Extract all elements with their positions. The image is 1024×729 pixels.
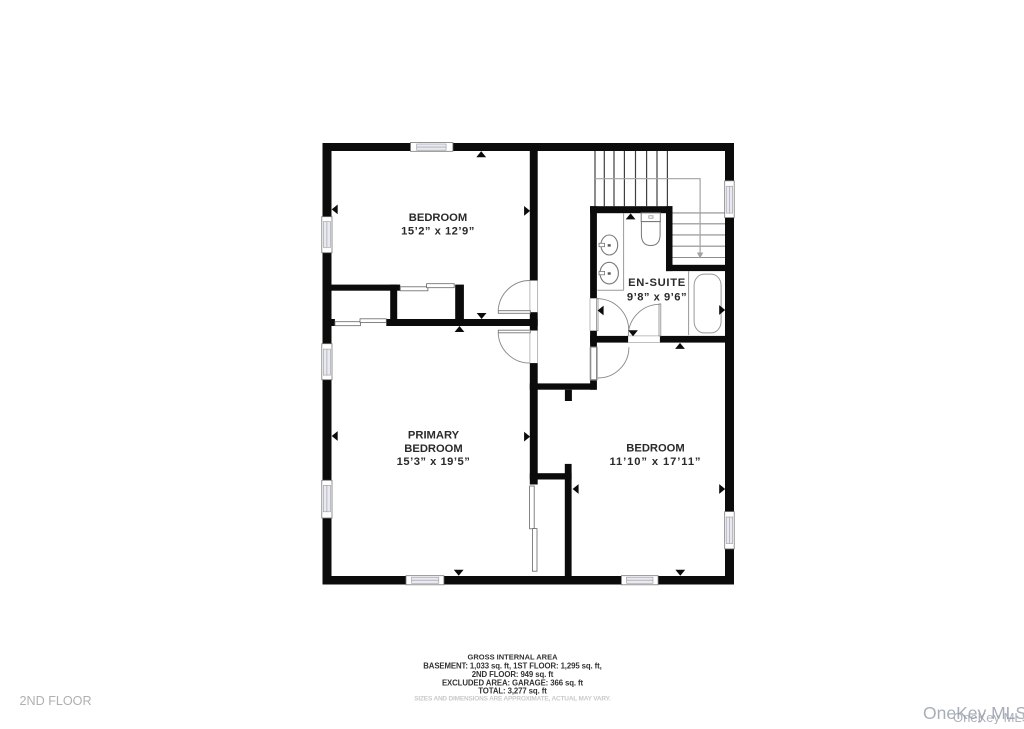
svg-text:SIZES AND DIMENSIONS ARE APPRO: SIZES AND DIMENSIONS ARE APPROXIMATE, AC… bbox=[414, 696, 611, 703]
svg-text:9’8” x 9’6”: 9’8” x 9’6” bbox=[627, 292, 687, 304]
svg-text:BEDROOM: BEDROOM bbox=[404, 443, 462, 455]
svg-text:BEDROOM: BEDROOM bbox=[626, 443, 684, 455]
svg-text:15’3” x 19’5”: 15’3” x 19’5” bbox=[397, 456, 471, 468]
svg-text:BEDROOM: BEDROOM bbox=[409, 212, 467, 224]
svg-text:PRIMARY: PRIMARY bbox=[408, 430, 460, 442]
svg-text:TOTAL: 3,277 sq. ft: TOTAL: 3,277 sq. ft bbox=[478, 686, 547, 695]
svg-text:BASEMENT: 1,033 sq. ft, 1ST FL: BASEMENT: 1,033 sq. ft, 1ST FLOOR: 1,295… bbox=[423, 661, 601, 670]
svg-text:11’10” x 17’11”: 11’10” x 17’11” bbox=[610, 456, 702, 468]
svg-text:15’2” x 12’9”: 15’2” x 12’9” bbox=[401, 225, 475, 237]
svg-text:OneKey MLS: OneKey MLS bbox=[953, 710, 1024, 724]
svg-text:GROSS INTERNAL AREA: GROSS INTERNAL AREA bbox=[467, 653, 558, 662]
svg-text:2ND FLOOR: 2ND FLOOR bbox=[20, 694, 92, 708]
svg-text:EN-SUITE: EN-SUITE bbox=[628, 277, 686, 289]
